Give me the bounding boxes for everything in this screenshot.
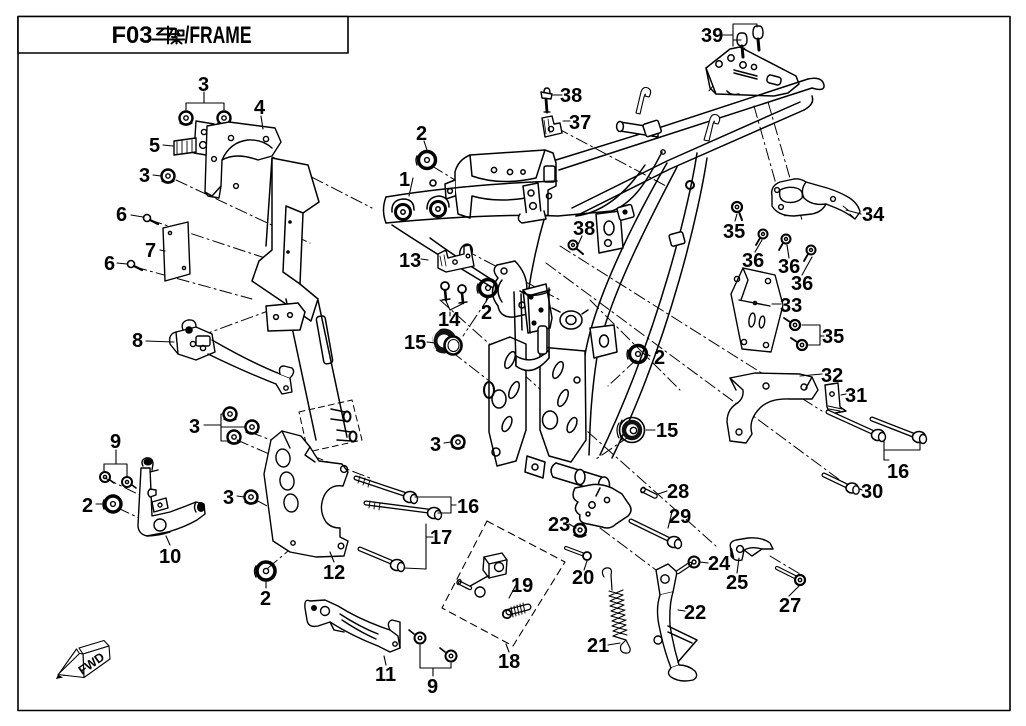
svg-text:38: 38	[573, 218, 595, 240]
svg-text:F03: F03	[112, 22, 153, 49]
svg-text:13: 13	[399, 250, 421, 272]
svg-text:22: 22	[684, 602, 706, 624]
svg-text:6: 6	[104, 253, 115, 275]
svg-text:27: 27	[779, 595, 801, 617]
svg-text:3: 3	[139, 165, 150, 187]
svg-text:/FRAME: /FRAME	[185, 22, 252, 49]
svg-text:3: 3	[430, 434, 441, 456]
svg-text:36: 36	[791, 273, 813, 295]
svg-text:36: 36	[742, 250, 764, 272]
svg-text:4: 4	[254, 97, 266, 119]
svg-text:21: 21	[587, 635, 609, 657]
svg-text:14: 14	[438, 309, 461, 331]
svg-text:30: 30	[861, 481, 883, 503]
svg-text:18: 18	[498, 651, 520, 673]
svg-text:8: 8	[132, 330, 143, 352]
svg-text:35: 35	[822, 326, 844, 348]
svg-text:2: 2	[416, 123, 427, 145]
svg-text:29: 29	[669, 506, 691, 528]
svg-text:23: 23	[548, 514, 570, 536]
svg-text:3: 3	[223, 487, 234, 509]
svg-text:33: 33	[780, 295, 802, 317]
svg-text:34: 34	[862, 204, 885, 226]
svg-text:2: 2	[654, 347, 665, 369]
svg-text:38: 38	[560, 85, 582, 107]
svg-text:5: 5	[149, 135, 160, 157]
svg-text:25: 25	[726, 572, 748, 594]
svg-text:37: 37	[569, 112, 591, 134]
svg-text:7: 7	[145, 240, 156, 262]
svg-text:1: 1	[399, 169, 410, 191]
svg-text:16: 16	[887, 461, 909, 483]
svg-text:15: 15	[404, 332, 426, 354]
svg-text:3: 3	[189, 416, 200, 438]
svg-text:35: 35	[723, 221, 745, 243]
svg-text:11: 11	[375, 664, 396, 686]
svg-text:28: 28	[667, 481, 689, 503]
svg-text:2: 2	[481, 302, 492, 324]
svg-text:9: 9	[110, 431, 121, 453]
svg-text:17: 17	[430, 527, 452, 549]
svg-text:15: 15	[656, 420, 678, 442]
svg-text:39: 39	[701, 25, 723, 47]
svg-text:19: 19	[511, 575, 533, 597]
svg-text:2: 2	[82, 495, 93, 517]
svg-text:20: 20	[572, 567, 594, 589]
svg-text:16: 16	[457, 496, 479, 518]
svg-text:32: 32	[821, 365, 843, 387]
svg-text:2: 2	[260, 588, 271, 610]
svg-text:9: 9	[427, 676, 438, 698]
svg-text:12: 12	[323, 562, 345, 584]
svg-text:3: 3	[198, 74, 209, 96]
svg-text:6: 6	[116, 204, 127, 226]
svg-text:31: 31	[845, 385, 867, 407]
svg-text:10: 10	[159, 546, 181, 568]
